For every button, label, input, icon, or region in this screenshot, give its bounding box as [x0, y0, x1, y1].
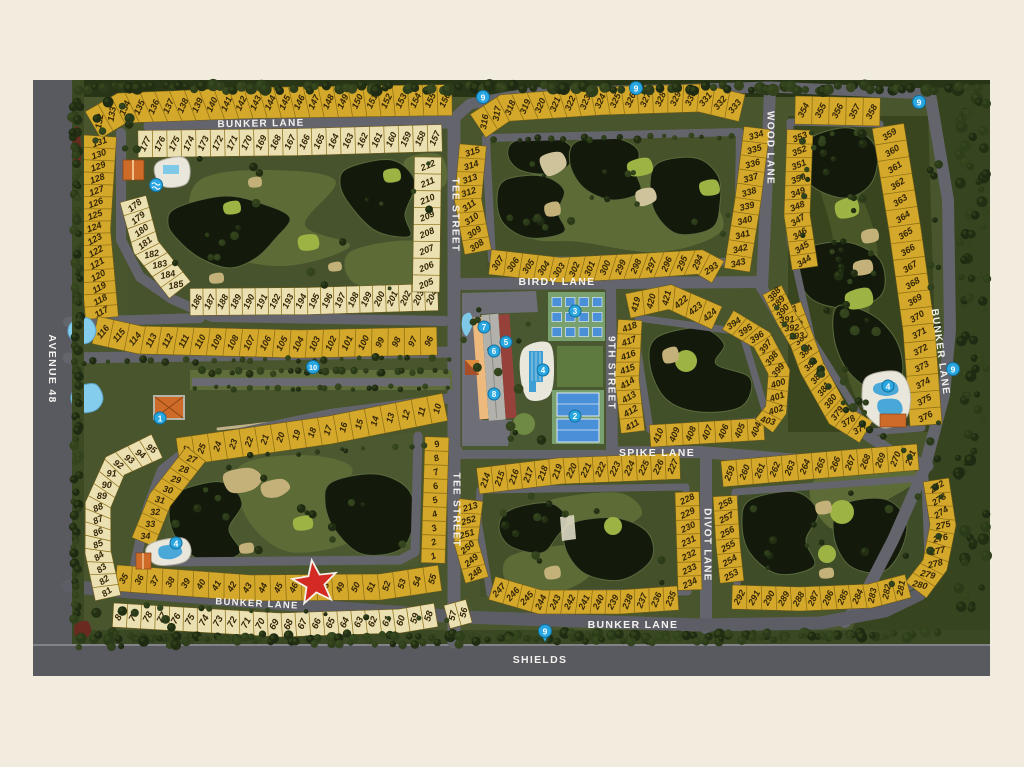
svg-text:9: 9: [634, 84, 639, 94]
svg-text:90: 90: [102, 480, 112, 490]
svg-text:SPIKE LANE: SPIKE LANE: [619, 447, 695, 459]
svg-text:7: 7: [482, 323, 487, 332]
svg-text:91: 91: [107, 469, 117, 479]
svg-text:WOOD LANE: WOOD LANE: [765, 111, 776, 185]
svg-text:9: 9: [481, 93, 486, 103]
svg-text:SHIELDS: SHIELDS: [513, 654, 568, 666]
svg-text:5: 5: [504, 338, 509, 347]
svg-text:4: 4: [174, 539, 179, 549]
svg-text:6: 6: [492, 347, 497, 356]
svg-text:DIVOT LANE: DIVOT LANE: [702, 508, 713, 582]
svg-text:9: 9: [917, 98, 922, 108]
svg-text:AVENUE 48: AVENUE 48: [46, 334, 58, 403]
svg-text:89: 89: [97, 491, 107, 501]
svg-text:9: 9: [543, 627, 548, 637]
svg-text:BUNKER LANE: BUNKER LANE: [588, 619, 679, 631]
svg-text:9TH STREET: 9TH STREET: [606, 336, 617, 410]
svg-text:33: 33: [145, 519, 155, 529]
svg-text:2: 2: [573, 412, 578, 421]
svg-text:1: 1: [158, 414, 163, 424]
svg-text:BIRDY LANE: BIRDY LANE: [519, 276, 596, 288]
svg-text:BUNKER LANE: BUNKER LANE: [217, 118, 304, 131]
svg-text:3: 3: [573, 307, 578, 316]
svg-text:8: 8: [492, 390, 497, 399]
svg-text:TEE STREET: TEE STREET: [450, 178, 461, 253]
svg-text:34: 34: [140, 531, 150, 541]
svg-text:4: 4: [886, 382, 891, 392]
svg-text:32: 32: [150, 507, 160, 517]
svg-text:4: 4: [541, 366, 546, 375]
svg-text:9: 9: [951, 365, 956, 375]
svg-text:TEE STREET: TEE STREET: [451, 473, 462, 548]
svg-text:10: 10: [309, 363, 317, 372]
